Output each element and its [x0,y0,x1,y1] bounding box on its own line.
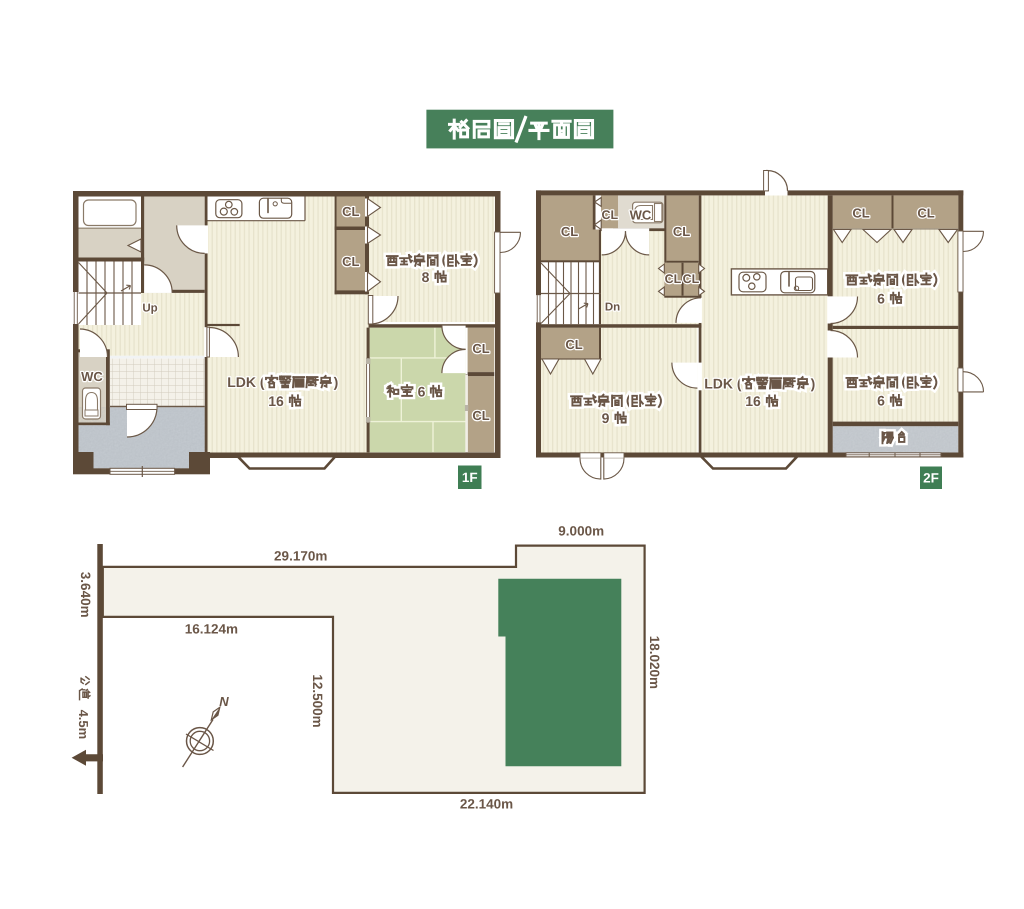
svg-text:CL: CL [852,205,869,220]
svg-text:16: 16 [268,393,284,409]
svg-text:6: 6 [418,384,426,400]
svg-text:16.124m: 16.124m [185,622,238,637]
svg-text:CL: CL [342,254,359,269]
svg-text:CL: CL [565,337,582,352]
svg-text:8: 8 [422,269,430,285]
svg-text:LDK (: LDK ( [227,374,265,390]
svg-text:4.5m: 4.5m [76,710,91,740]
svg-text:CL: CL [917,205,934,220]
svg-text:16: 16 [745,393,761,409]
svg-text:CL: CL [673,224,690,239]
svg-text:Up: Up [142,303,157,315]
svg-text:): ) [811,375,816,391]
svg-text:12.500m: 12.500m [310,674,325,727]
svg-text:6: 6 [877,290,885,306]
svg-text:LDK (: LDK ( [704,375,742,391]
svg-text:18.020m: 18.020m [647,636,662,689]
svg-text:9.000m: 9.000m [558,524,604,539]
svg-text:1F: 1F [462,470,478,485]
svg-text:CL: CL [665,272,682,286]
svg-text:Dn: Dn [605,302,620,314]
svg-text:CL: CL [472,408,489,423]
svg-text:): ) [334,374,339,390]
svg-text:N: N [219,694,229,709]
svg-text:WC: WC [630,208,652,223]
svg-text:2F: 2F [923,471,939,486]
svg-text:CL: CL [683,272,700,286]
svg-text:CL: CL [472,341,489,356]
svg-text:29.170m: 29.170m [274,549,327,564]
svg-text:9: 9 [602,410,610,426]
svg-text:22.140m: 22.140m [460,797,513,812]
svg-text:CL: CL [342,204,359,219]
svg-text:3.640m: 3.640m [78,572,93,618]
svg-text:6: 6 [877,393,885,409]
svg-text:WC: WC [81,369,103,384]
svg-text:CL: CL [561,224,578,239]
svg-text:CL: CL [601,208,618,222]
